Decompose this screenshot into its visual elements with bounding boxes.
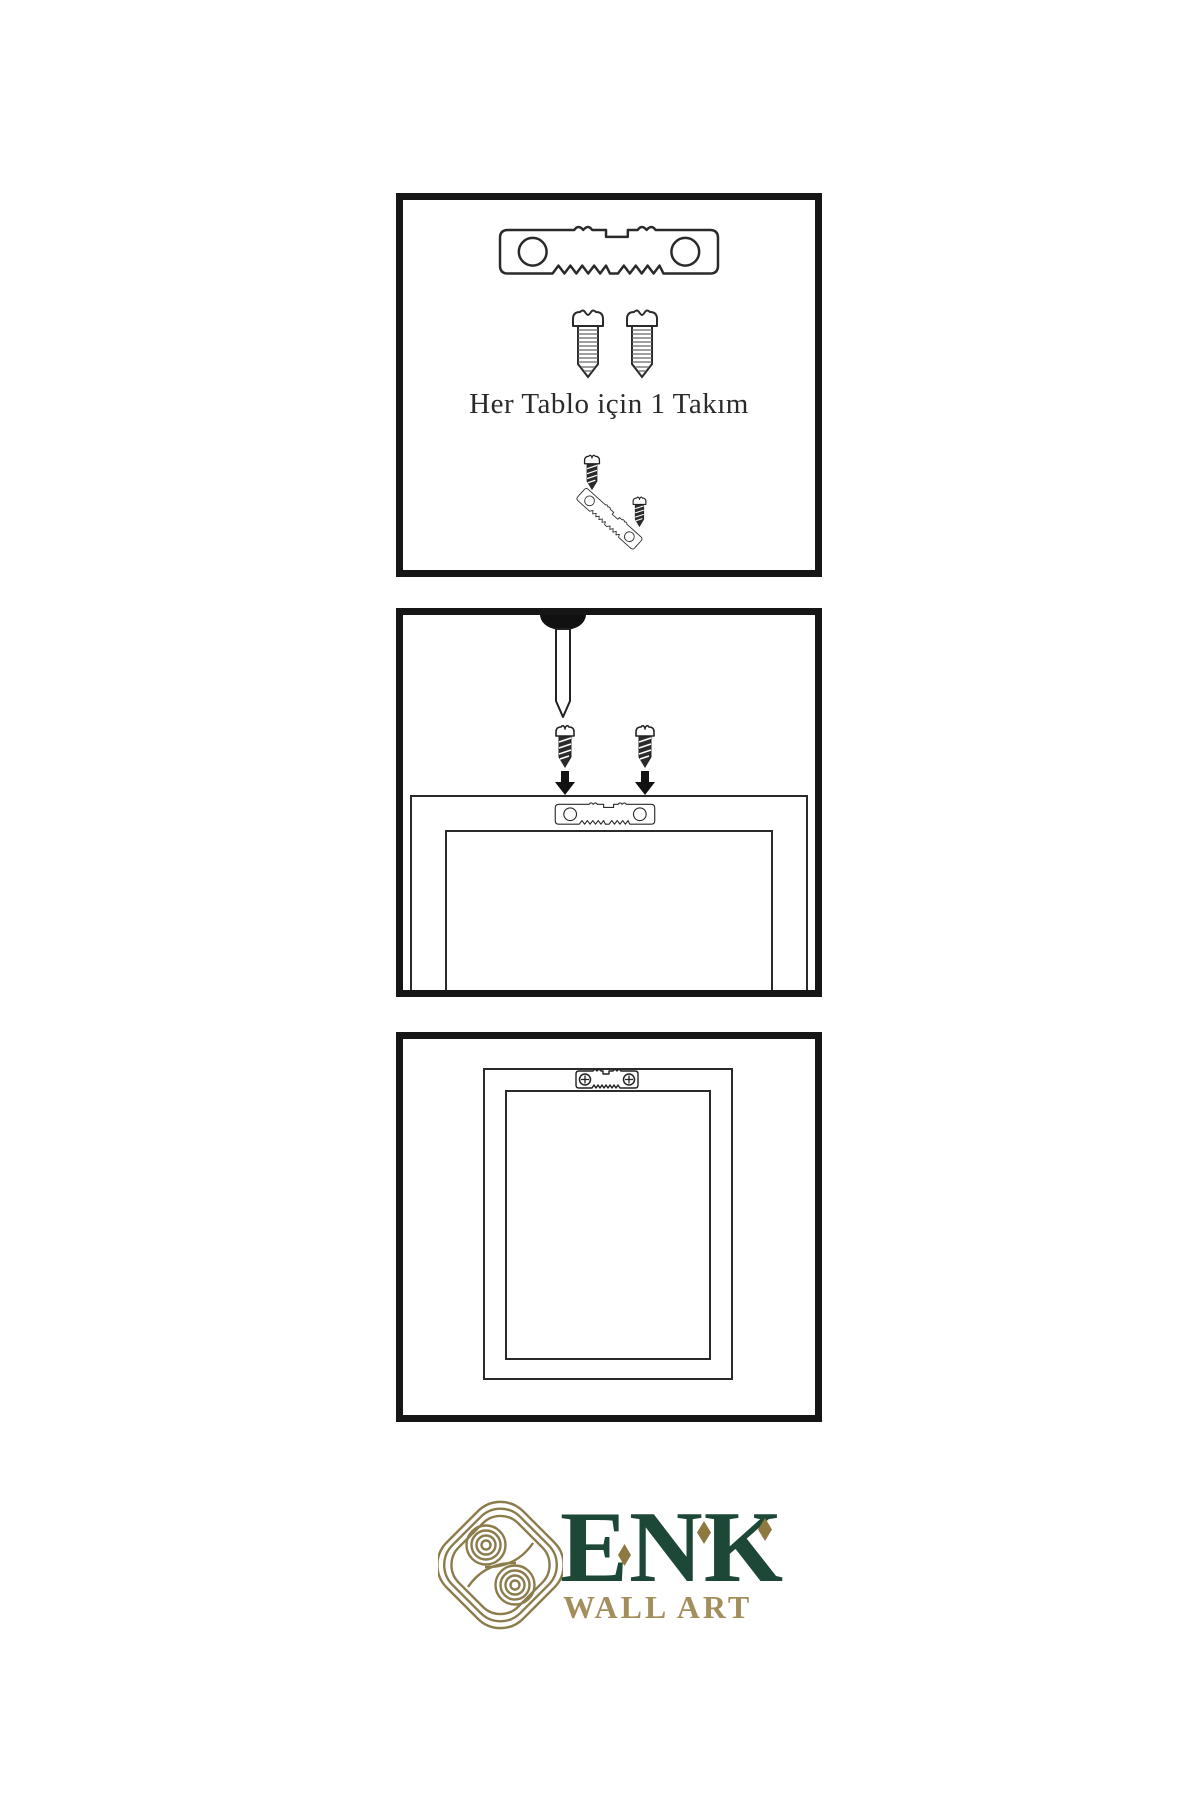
dark-screw-icon-left: [553, 723, 577, 769]
instruction-sheet: Her Tablo için 1 Takım ENK WALL ART: [0, 0, 1200, 1800]
frame-inner-edge: [445, 830, 773, 997]
dark-screw-icon-right: [633, 723, 657, 769]
down-arrow-icon-left: [555, 771, 575, 795]
brand-name: ENK: [560, 1497, 784, 1599]
knot-logo-icon: [438, 1500, 563, 1630]
down-arrow-icon-right: [635, 771, 655, 795]
screw-icon-right: [624, 307, 660, 381]
wall-nail-icon: [539, 615, 587, 719]
screw-icon-left: [570, 307, 606, 381]
instruction-panel-3: [396, 1032, 822, 1422]
sawtooth-hanger-icon: [495, 225, 723, 279]
step1-caption: Her Tablo için 1 Takım: [403, 388, 815, 421]
mounted-hanger-icon: [575, 1069, 639, 1090]
brand-subtitle: WALL ART: [563, 1591, 752, 1623]
brand-logo: ENK WALL ART: [0, 1490, 1200, 1650]
instruction-panel-1: Her Tablo için 1 Takım: [396, 193, 822, 577]
mini-screw-icon-2: [631, 495, 648, 528]
instruction-panel-2: [396, 608, 822, 997]
frame-hanger-icon: [553, 802, 657, 827]
hung-frame-inner-edge: [505, 1090, 711, 1360]
